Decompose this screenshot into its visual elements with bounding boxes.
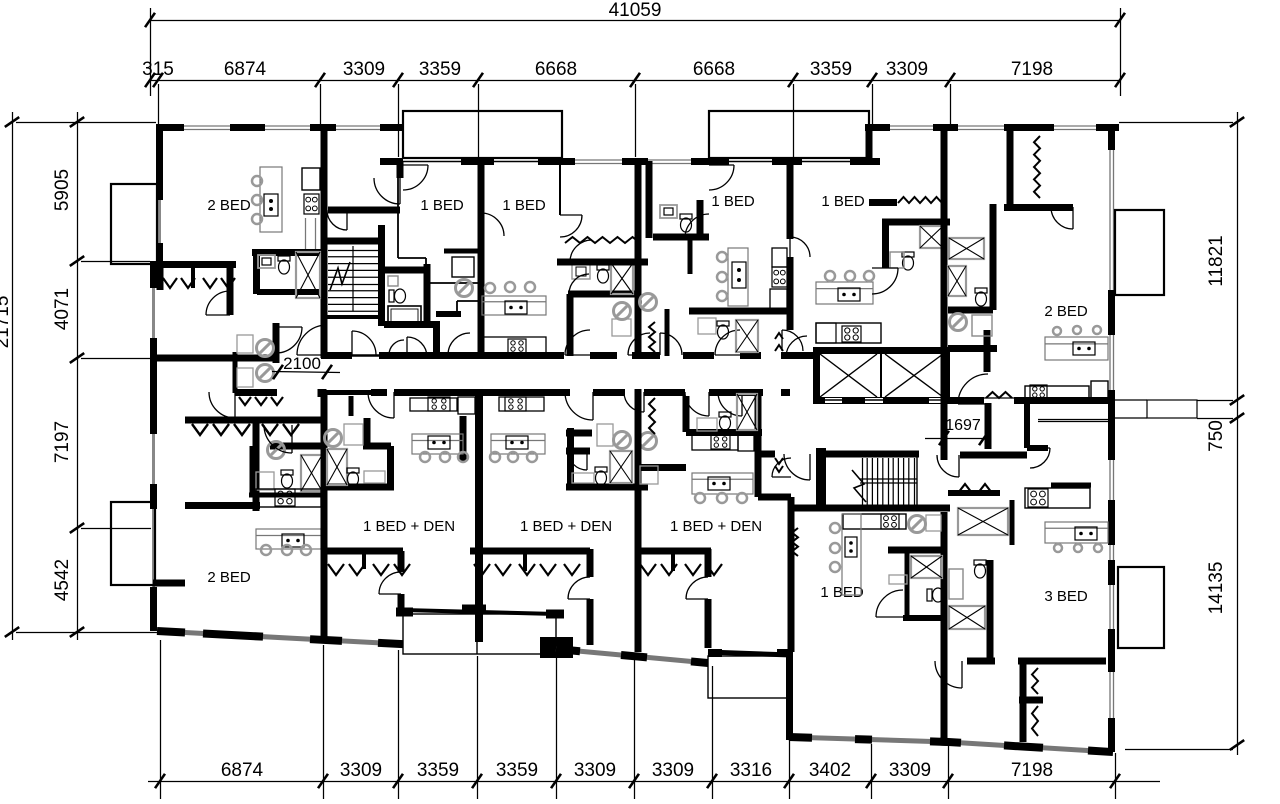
svg-text:4542: 4542 — [52, 559, 73, 601]
svg-text:11821: 11821 — [1206, 235, 1227, 286]
svg-text:3309: 3309 — [889, 760, 931, 781]
svg-text:6668: 6668 — [535, 59, 577, 80]
svg-text:2 BED: 2 BED — [1044, 303, 1088, 320]
svg-text:3359: 3359 — [417, 760, 459, 781]
svg-text:3309: 3309 — [574, 760, 616, 781]
svg-text:7198: 7198 — [1011, 760, 1053, 781]
svg-text:1 BED: 1 BED — [711, 193, 755, 210]
svg-text:3 BED: 3 BED — [1044, 588, 1088, 605]
svg-text:7197: 7197 — [52, 421, 73, 463]
svg-text:3309: 3309 — [652, 760, 694, 781]
svg-text:2100: 2100 — [283, 354, 321, 373]
svg-text:1 BED: 1 BED — [420, 197, 464, 214]
svg-text:6874: 6874 — [224, 59, 267, 80]
svg-text:21715: 21715 — [0, 296, 13, 349]
svg-text:3309: 3309 — [886, 59, 928, 80]
svg-text:6668: 6668 — [693, 59, 735, 80]
svg-text:1697: 1697 — [945, 417, 981, 434]
svg-text:7198: 7198 — [1011, 59, 1053, 80]
svg-text:6874: 6874 — [221, 760, 264, 781]
svg-text:3359: 3359 — [419, 59, 461, 80]
svg-text:3359: 3359 — [810, 59, 852, 80]
svg-text:315: 315 — [142, 59, 174, 80]
svg-text:1 BED + DEN: 1 BED + DEN — [363, 518, 455, 535]
svg-text:2 BED: 2 BED — [207, 197, 251, 214]
svg-text:4071: 4071 — [52, 288, 73, 330]
svg-text:3309: 3309 — [340, 760, 382, 781]
svg-text:2 BED: 2 BED — [207, 569, 251, 586]
svg-text:14135: 14135 — [1206, 562, 1227, 615]
svg-text:3359: 3359 — [496, 760, 538, 781]
svg-text:41059: 41059 — [609, 0, 662, 21]
svg-text:5905: 5905 — [52, 169, 73, 211]
svg-text:1 BED + DEN: 1 BED + DEN — [520, 518, 612, 535]
svg-text:750: 750 — [1206, 420, 1227, 452]
svg-text:3309: 3309 — [343, 59, 385, 80]
svg-text:1 BED + DEN: 1 BED + DEN — [670, 518, 762, 535]
svg-text:3402: 3402 — [809, 760, 851, 781]
svg-text:1 BED: 1 BED — [821, 193, 865, 210]
svg-text:3316: 3316 — [730, 760, 772, 781]
svg-text:1 BED: 1 BED — [502, 197, 546, 214]
